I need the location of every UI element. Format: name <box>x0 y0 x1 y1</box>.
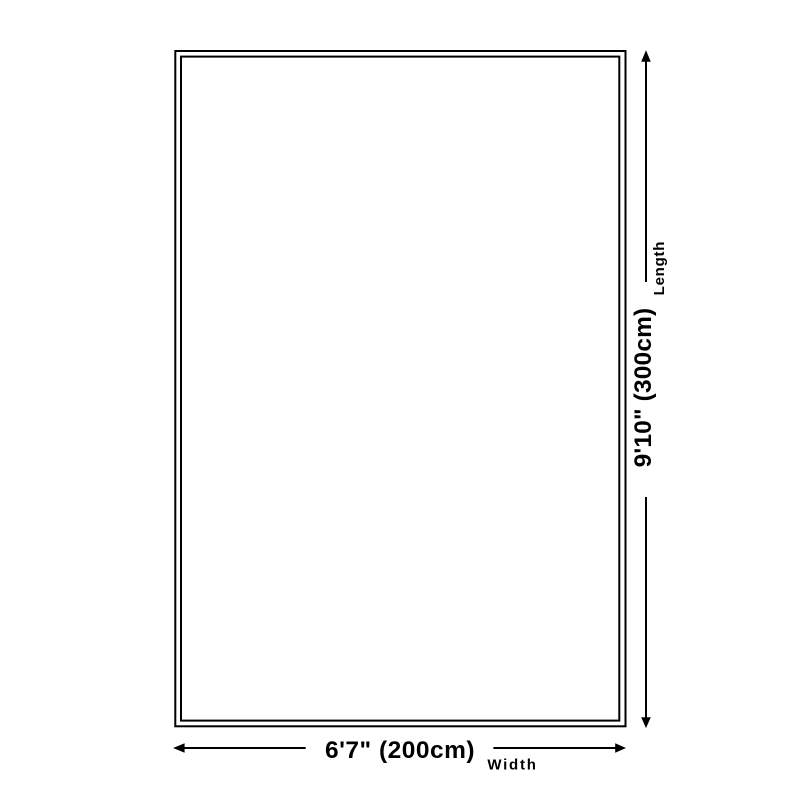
svg-text:6'7" (200cm): 6'7" (200cm) <box>325 737 475 764</box>
svg-text:9'10" (300cm): 9'10" (300cm) <box>630 308 657 468</box>
svg-text:Length: Length <box>651 241 668 296</box>
svg-text:Width: Width <box>487 756 537 773</box>
